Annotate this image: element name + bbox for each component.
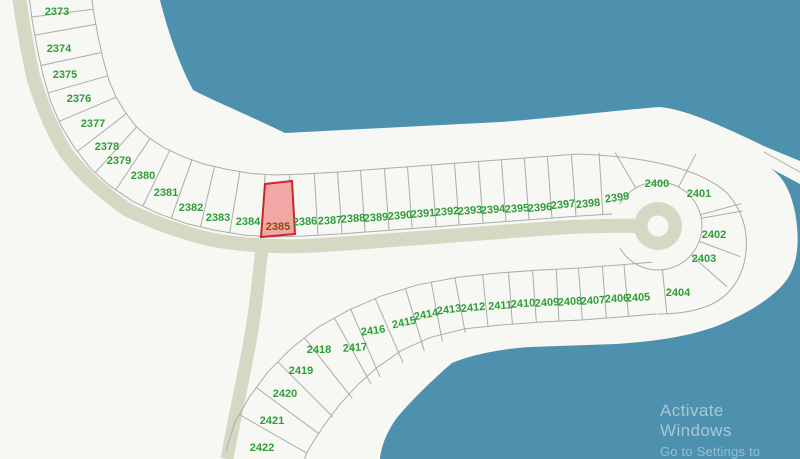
lot-label-2386[interactable]: 2386 <box>293 215 318 228</box>
lot-label-2373[interactable]: 2373 <box>45 6 69 18</box>
lot-label-2391[interactable]: 2391 <box>410 207 435 221</box>
lot-label-2387[interactable]: 2387 <box>318 214 343 227</box>
lot-label-2381[interactable]: 2381 <box>154 187 178 199</box>
lot-label-2410[interactable]: 2410 <box>510 297 535 311</box>
cul-de-sac-island <box>648 216 669 237</box>
lot-label-2395[interactable]: 2395 <box>504 202 529 216</box>
lot-label-2408[interactable]: 2408 <box>557 295 582 309</box>
lot-label-2394[interactable]: 2394 <box>480 203 506 217</box>
lot-label-2407[interactable]: 2407 <box>580 294 605 308</box>
lot-label-2389[interactable]: 2389 <box>363 211 388 225</box>
plat-map-canvas[interactable]: 2373237423752376237723782379238023812382… <box>0 0 800 459</box>
lot-label-2392[interactable]: 2392 <box>434 205 459 219</box>
lot-label-2400[interactable]: 2400 <box>645 178 669 190</box>
lot-label-2417[interactable]: 2417 <box>342 341 367 355</box>
lot-label-2402[interactable]: 2402 <box>702 229 726 241</box>
lot-label-2409[interactable]: 2409 <box>534 296 559 310</box>
lot-label-2393[interactable]: 2393 <box>457 204 482 218</box>
lot-label-2406[interactable]: 2406 <box>605 292 630 305</box>
lot-label-2390[interactable]: 2390 <box>387 209 412 223</box>
lot-label-2418[interactable]: 2418 <box>307 344 331 356</box>
lot-label-2397[interactable]: 2397 <box>550 198 576 212</box>
lot-label-2398[interactable]: 2398 <box>575 197 601 211</box>
lot-label-2401[interactable]: 2401 <box>687 188 711 200</box>
lot-label-2382[interactable]: 2382 <box>179 202 203 214</box>
lot-label-2420[interactable]: 2420 <box>273 388 297 400</box>
lot-label-2379[interactable]: 2379 <box>107 155 131 167</box>
lot-label-2412[interactable]: 2412 <box>460 301 486 315</box>
lot-label-2403[interactable]: 2403 <box>692 253 716 265</box>
lot-label-2404[interactable]: 2404 <box>666 287 691 299</box>
lot-label-2380[interactable]: 2380 <box>131 170 155 182</box>
lot-label-2378[interactable]: 2378 <box>95 141 119 153</box>
lot-label-2374[interactable]: 2374 <box>47 43 72 55</box>
lot-label-2388[interactable]: 2388 <box>340 212 365 226</box>
lot-label-2375[interactable]: 2375 <box>53 69 77 81</box>
lot-label-2422[interactable]: 2422 <box>250 442 274 454</box>
lot-label-2384[interactable]: 2384 <box>236 216 261 228</box>
plat-map-viewer: 2373237423752376237723782379238023812382… <box>0 0 800 459</box>
lot-label-2377[interactable]: 2377 <box>81 118 105 130</box>
lot-label-2383[interactable]: 2383 <box>206 212 230 224</box>
lot-label-2419[interactable]: 2419 <box>289 365 313 377</box>
lot-label-2421[interactable]: 2421 <box>260 415 284 427</box>
lot-label-2396[interactable]: 2396 <box>527 201 552 215</box>
lot-label-2385[interactable]: 2385 <box>266 221 290 233</box>
lot-label-2411[interactable]: 2411 <box>488 299 513 313</box>
lot-label-2376[interactable]: 2376 <box>67 93 91 105</box>
